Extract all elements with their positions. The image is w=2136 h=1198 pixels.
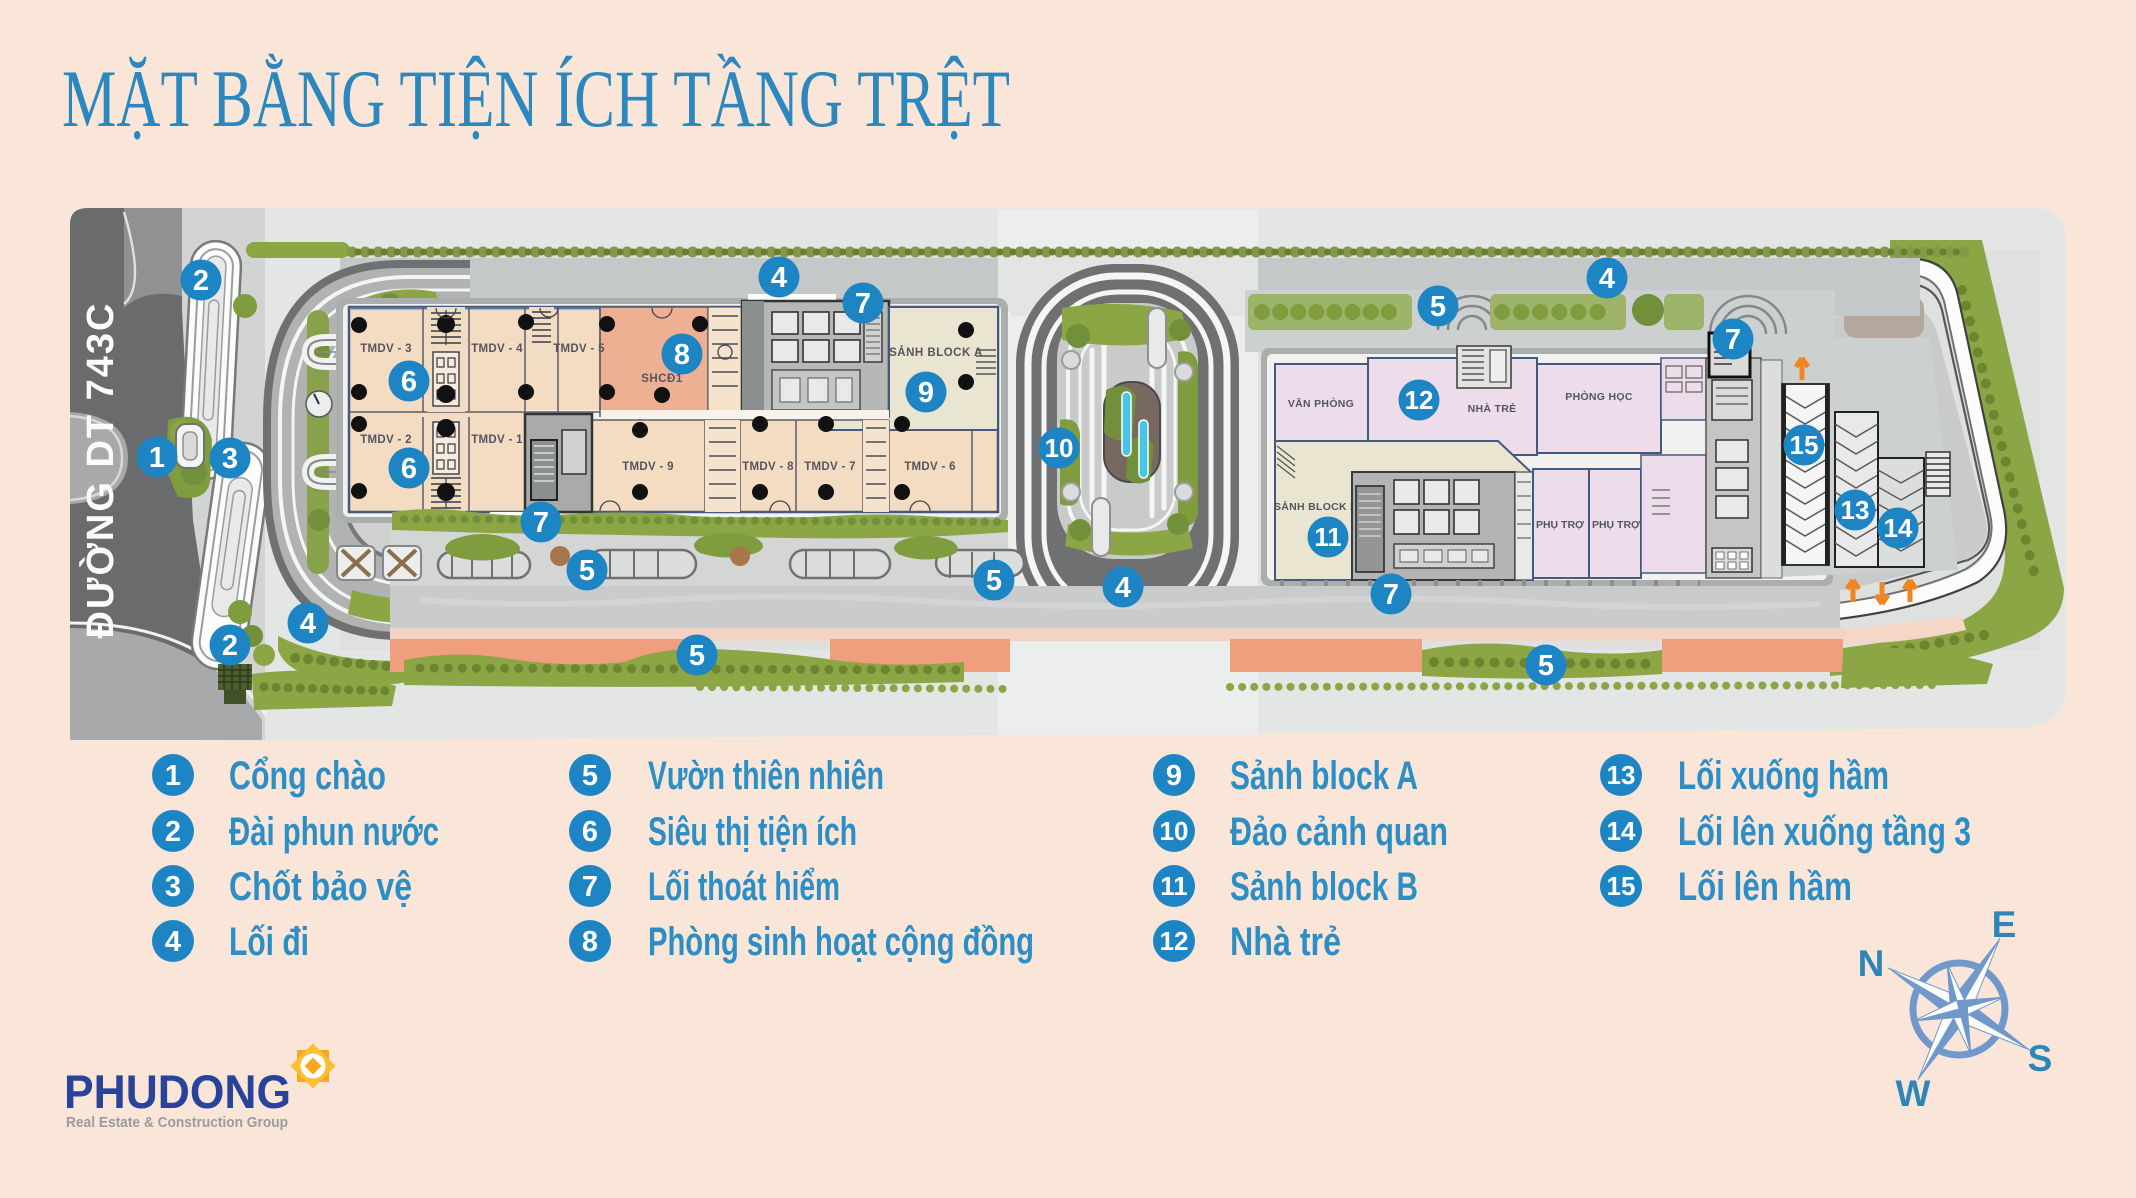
svg-text:2: 2 (222, 630, 238, 662)
svg-text:5: 5 (579, 555, 595, 587)
svg-text:14: 14 (1884, 513, 1913, 543)
svg-text:TMDV - 2: TMDV - 2 (360, 434, 412, 446)
svg-text:9: 9 (1166, 760, 1182, 792)
svg-text:Cổng chào: Cổng chào (229, 754, 386, 798)
svg-text:Đảo cảnh quan: Đảo cảnh quan (1230, 810, 1448, 854)
svg-text:7: 7 (855, 288, 871, 320)
svg-text:PHỤ TRỢ: PHỤ TRỢ (1592, 519, 1640, 531)
svg-text:S: S (2028, 1038, 2053, 1079)
svg-text:Đài phun nước: Đài phun nước (229, 810, 439, 854)
svg-text:6: 6 (401, 366, 417, 398)
svg-text:13: 13 (1607, 760, 1636, 790)
svg-text:8: 8 (674, 339, 690, 371)
svg-text:PHÒNG HỌC: PHÒNG HỌC (1565, 390, 1633, 403)
svg-text:E: E (1992, 904, 2017, 945)
svg-text:Phòng sinh hoạt cộng đồng: Phòng sinh hoạt cộng đồng (648, 920, 1034, 964)
svg-text:Lối lên hầm: Lối lên hầm (1678, 865, 1852, 909)
svg-text:14: 14 (1607, 816, 1636, 846)
svg-text:Nhà trẻ: Nhà trẻ (1230, 920, 1341, 964)
svg-text:VĂN PHÒNG: VĂN PHÒNG (1288, 397, 1354, 410)
svg-text:TMDV - 1: TMDV - 1 (471, 434, 523, 446)
svg-text:5: 5 (1538, 650, 1554, 682)
svg-text:TMDV - 7: TMDV - 7 (804, 461, 856, 473)
svg-text:5: 5 (689, 640, 705, 672)
svg-text:13: 13 (1841, 495, 1870, 525)
svg-text:ĐƯỜNG DT 743C: ĐƯỜNG DT 743C (78, 302, 122, 639)
svg-text:4: 4 (165, 926, 181, 958)
svg-text:TMDV - 9: TMDV - 9 (622, 461, 674, 473)
svg-text:Siêu thị tiện ích: Siêu thị tiện ích (648, 810, 857, 854)
svg-text:Sảnh block A: Sảnh block A (1230, 754, 1418, 798)
svg-text:Lối đi: Lối đi (229, 920, 309, 964)
svg-text:1: 1 (165, 760, 181, 792)
svg-text:PHỤ TRỢ: PHỤ TRỢ (1536, 519, 1584, 531)
svg-text:TMDV - 3: TMDV - 3 (360, 343, 412, 355)
svg-text:Vườn thiên nhiên: Vườn thiên nhiên (648, 754, 884, 798)
svg-text:9: 9 (918, 377, 934, 409)
svg-text:5: 5 (986, 565, 1002, 597)
svg-text:W: W (1896, 1073, 1931, 1114)
svg-text:4: 4 (1599, 263, 1615, 295)
svg-text:7: 7 (1383, 579, 1399, 611)
svg-text:3: 3 (165, 871, 181, 903)
svg-text:SẢNH BLOCK A: SẢNH BLOCK A (889, 346, 983, 359)
svg-text:SẢNH BLOCK B: SẢNH BLOCK B (1274, 500, 1358, 513)
svg-text:MẶT BẰNG TIỆN ÍCH TẦNG TRỆT: MẶT BẰNG TIỆN ÍCH TẦNG TRỆT (62, 53, 1010, 144)
svg-text:10: 10 (1160, 816, 1189, 846)
svg-text:7: 7 (1725, 324, 1741, 356)
svg-text:2: 2 (165, 816, 181, 848)
svg-text:4: 4 (1115, 572, 1131, 604)
svg-text:7: 7 (533, 507, 549, 539)
svg-text:6: 6 (401, 453, 417, 485)
svg-text:5: 5 (582, 760, 598, 792)
svg-text:7: 7 (582, 871, 598, 903)
svg-text:Lối thoát hiểm: Lối thoát hiểm (648, 865, 840, 909)
svg-text:11: 11 (1314, 522, 1342, 552)
svg-text:Lối xuống hầm: Lối xuống hầm (1678, 754, 1889, 798)
svg-text:NHÀ TRẺ: NHÀ TRẺ (1468, 402, 1517, 415)
svg-text:Sảnh block B: Sảnh block B (1230, 865, 1418, 909)
svg-text:2: 2 (193, 265, 209, 297)
svg-text:1: 1 (149, 442, 165, 474)
svg-text:SHCĐ1: SHCĐ1 (641, 373, 683, 385)
svg-text:8: 8 (582, 926, 598, 958)
svg-text:TMDV - 4: TMDV - 4 (471, 343, 523, 355)
svg-text:TMDV - 5: TMDV - 5 (553, 343, 605, 355)
svg-text:TMDV - 6: TMDV - 6 (904, 461, 956, 473)
svg-text:Chốt bảo vệ: Chốt bảo vệ (229, 865, 412, 909)
svg-text:11: 11 (1160, 871, 1188, 901)
svg-text:Lối lên xuống tầng 3: Lối lên xuống tầng 3 (1678, 810, 1971, 854)
svg-text:12: 12 (1160, 926, 1189, 956)
svg-text:Real Estate & Construction Gro: Real Estate & Construction Group (66, 1114, 288, 1131)
svg-text:12: 12 (1405, 385, 1434, 415)
svg-text:15: 15 (1790, 430, 1819, 460)
svg-text:PHUDONG: PHUDONG (64, 1065, 291, 1118)
svg-text:3: 3 (222, 443, 238, 475)
svg-text:6: 6 (582, 816, 598, 848)
svg-text:5: 5 (1430, 291, 1446, 323)
svg-text:N: N (1858, 943, 1885, 984)
svg-text:4: 4 (300, 608, 316, 640)
svg-text:TMDV - 8: TMDV - 8 (742, 461, 794, 473)
svg-text:10: 10 (1045, 433, 1074, 463)
svg-text:4: 4 (771, 262, 787, 294)
svg-text:15: 15 (1607, 871, 1636, 901)
